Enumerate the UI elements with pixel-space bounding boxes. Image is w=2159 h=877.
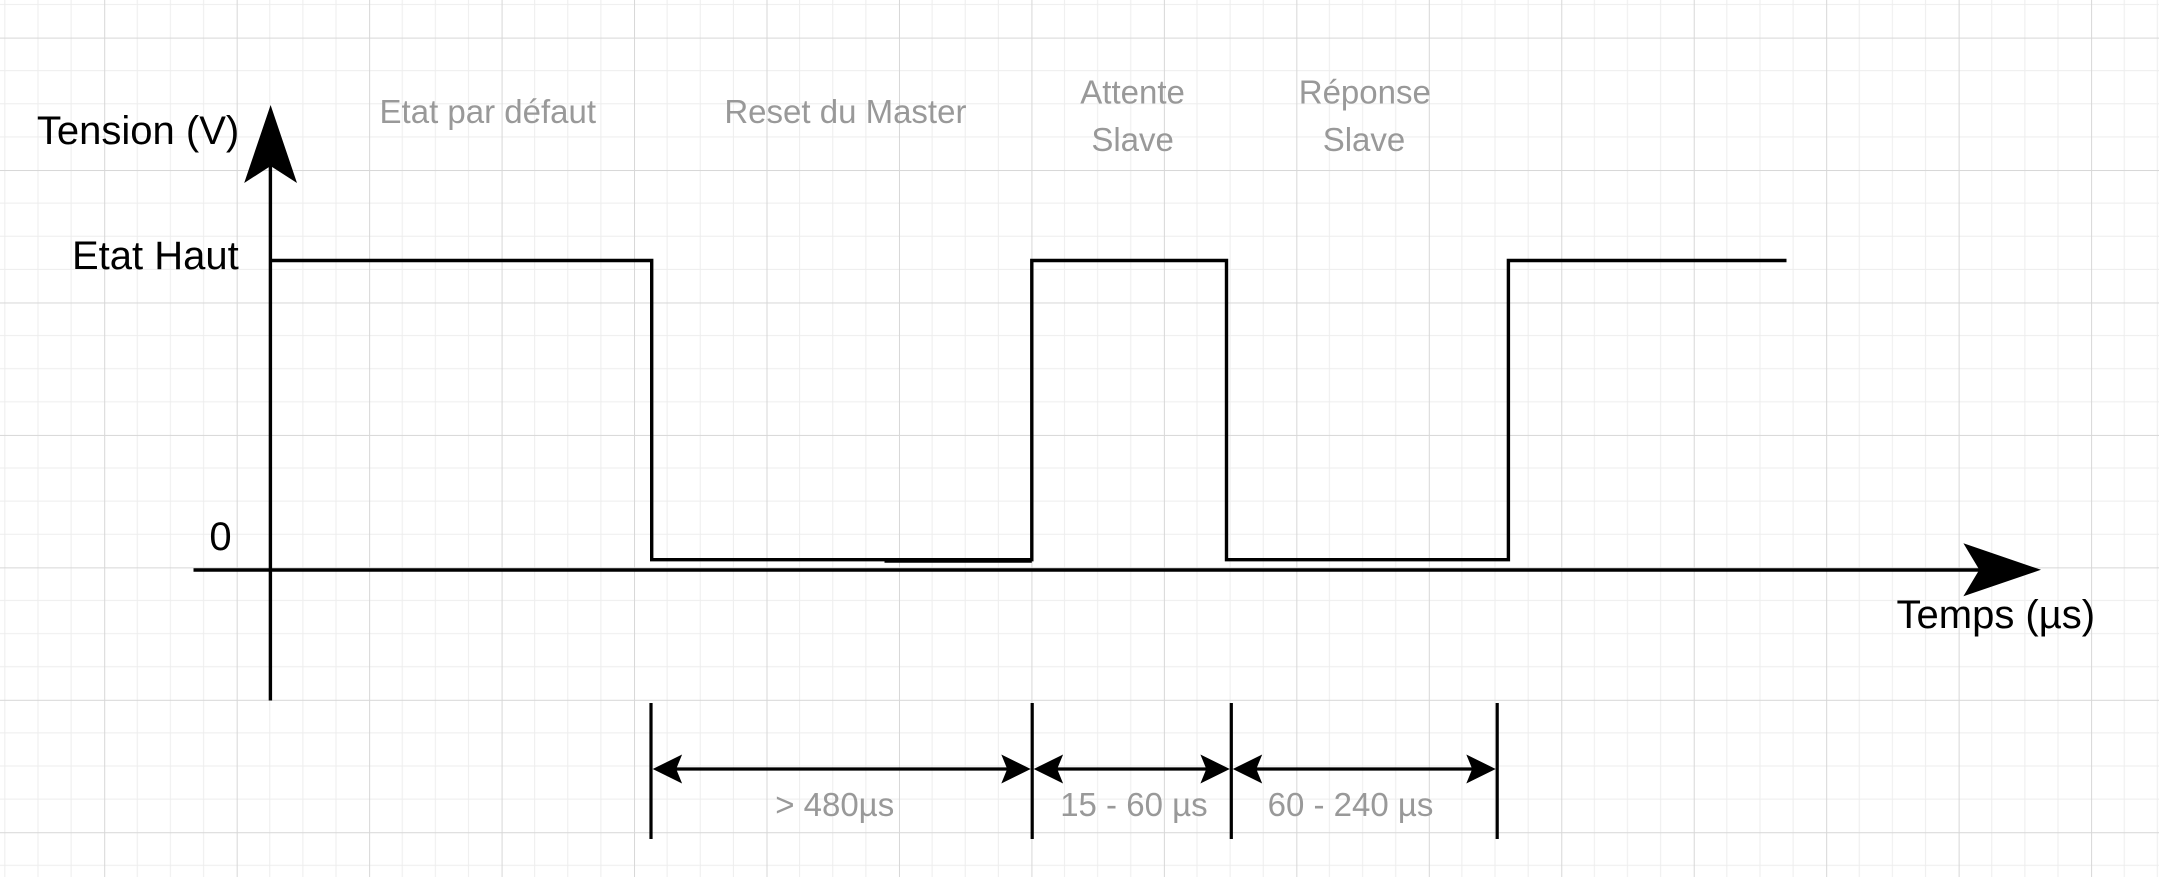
svg-text:Etat par défaut: Etat par défaut <box>380 93 596 130</box>
svg-text:Réponse: Réponse <box>1299 74 1431 111</box>
svg-text:Temps (µs): Temps (µs) <box>1897 593 2096 637</box>
svg-text:60 - 240 µs: 60 - 240 µs <box>1268 786 1434 823</box>
svg-text:Tension (V): Tension (V) <box>37 109 239 153</box>
svg-text:Slave: Slave <box>1323 121 1406 158</box>
svg-text:Reset du Master: Reset du Master <box>724 93 966 130</box>
svg-text:Etat Haut: Etat Haut <box>72 234 239 278</box>
svg-text:15 - 60 µs: 15 - 60 µs <box>1060 786 1207 823</box>
svg-text:> 480µs: > 480µs <box>775 786 894 823</box>
svg-text:Slave: Slave <box>1091 121 1174 158</box>
svg-text:0: 0 <box>209 515 231 559</box>
svg-text:Attente: Attente <box>1080 74 1185 111</box>
